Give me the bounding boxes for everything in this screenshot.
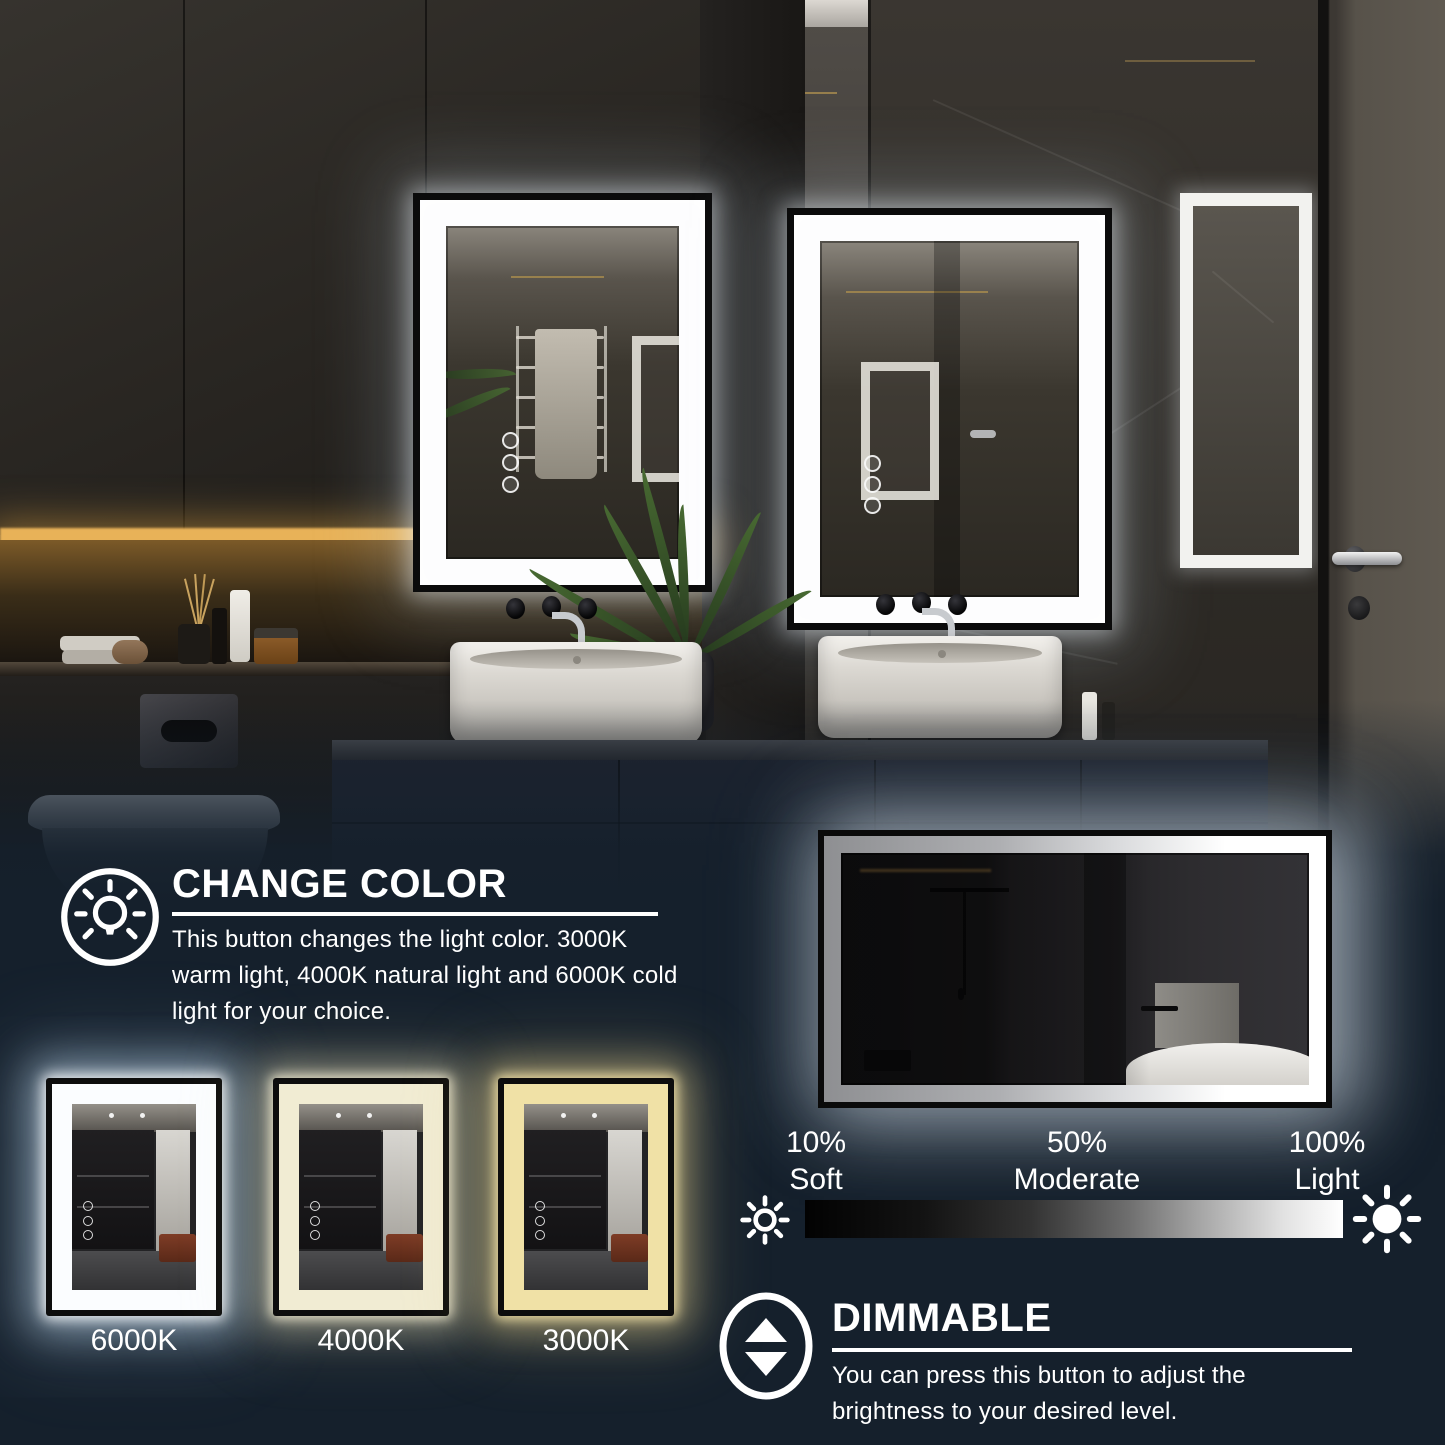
reflection-bench xyxy=(159,1234,196,1262)
reflection-ceiling xyxy=(299,1104,423,1132)
reflection-bench xyxy=(386,1234,423,1262)
light-bulb-rays-icon xyxy=(58,865,162,969)
mirror-glass xyxy=(524,1104,648,1290)
plant-leaf xyxy=(446,361,516,385)
door-handle xyxy=(1332,552,1402,565)
faucet-knob xyxy=(876,594,895,615)
mirror-touch-button xyxy=(502,454,519,471)
mirror-touch-button xyxy=(310,1216,320,1226)
mirror-touch-button xyxy=(535,1201,545,1211)
mirror-thumbnail-3000k xyxy=(498,1078,674,1316)
mirror-touch-button xyxy=(535,1216,545,1226)
mirror-touch-button xyxy=(83,1201,93,1211)
faucet-knob xyxy=(506,598,525,619)
temp-label-4000k: 4000K xyxy=(273,1324,449,1358)
mirror-touch-button xyxy=(502,476,519,493)
change-color-description: This button changes the light color. 300… xyxy=(172,922,692,1030)
faucet-knob xyxy=(948,594,967,615)
temp-label-6000k: 6000K xyxy=(46,1324,222,1358)
amber-jar xyxy=(254,628,298,664)
led-mirror-product-infographic: CHANGE COLOR This button changes the lig… xyxy=(0,0,1445,1445)
mirror-thumbnail-4000k xyxy=(273,1078,449,1316)
change-color-title: CHANGE COLOR xyxy=(172,862,507,907)
reflected-door-handle xyxy=(970,430,996,438)
mirror-thumbnail-6000k xyxy=(46,1078,222,1316)
towel-rack-post xyxy=(604,326,607,473)
reflection-ceiling xyxy=(72,1104,196,1132)
mirror-glass xyxy=(446,226,679,559)
mirror-glass xyxy=(841,853,1309,1085)
dark-bottle xyxy=(212,608,227,664)
brightness-gradient-bar xyxy=(805,1200,1343,1238)
brightness-percent: 100% xyxy=(1242,1124,1412,1161)
up-down-arrows-icon xyxy=(716,1290,816,1402)
mirror-touch-button xyxy=(83,1216,93,1226)
dimmable-mirror-inset xyxy=(818,830,1332,1108)
closet-shelf xyxy=(77,1175,149,1177)
gold-inlay-line xyxy=(1125,60,1255,62)
brightness-percent: 10% xyxy=(731,1124,901,1161)
dimmable-title: DIMMABLE xyxy=(832,1296,1052,1341)
led-mirror-right xyxy=(787,208,1112,630)
plant-leaf xyxy=(446,378,511,432)
door-lock xyxy=(1348,596,1370,620)
temp-label-3000k: 3000K xyxy=(498,1324,674,1358)
mirror-glass xyxy=(72,1104,196,1290)
mirror-touch-button xyxy=(864,455,881,472)
cabinet-seam xyxy=(183,0,185,535)
towel-rack-post xyxy=(516,326,519,473)
dimmable-underline xyxy=(832,1348,1352,1352)
mirror-touch-button xyxy=(864,476,881,493)
sink-drain xyxy=(938,650,946,658)
brightness-level-low: 10% Soft xyxy=(731,1124,901,1198)
cosmetic-tube xyxy=(230,590,250,662)
led-mirror-side xyxy=(1180,193,1312,568)
reflection-gold-line xyxy=(511,276,604,278)
reflected-mirror-frame xyxy=(632,336,679,482)
mirror-glass xyxy=(1193,206,1299,555)
change-color-underline xyxy=(172,912,658,916)
diffuser-bottle xyxy=(178,624,210,664)
brightness-zones xyxy=(841,853,1309,1085)
mirror-glass xyxy=(820,241,1079,597)
reflection-gold-line xyxy=(846,291,988,293)
led-mirror-left xyxy=(413,193,712,592)
brightness-level-mid: 50% Moderate xyxy=(992,1124,1162,1198)
faucet-knob xyxy=(578,598,597,619)
brightness-word: Moderate xyxy=(992,1161,1162,1198)
reflection-bench xyxy=(611,1234,648,1262)
rolled-towel xyxy=(112,640,148,664)
sun-filled-icon xyxy=(1351,1183,1423,1255)
closet-shelf xyxy=(304,1175,376,1177)
hanging-towel xyxy=(535,329,597,479)
closet-shelf xyxy=(529,1175,601,1177)
mirror-touch-button xyxy=(310,1201,320,1211)
dimmable-description: You can press this button to adjust the … xyxy=(832,1358,1342,1430)
reflection-ceiling xyxy=(524,1104,648,1132)
mirror-touch-button xyxy=(864,497,881,514)
brightness-percent: 50% xyxy=(992,1124,1162,1161)
sun-outline-icon xyxy=(737,1192,793,1248)
mirror-glass xyxy=(299,1104,423,1290)
marble-vein xyxy=(1212,271,1275,324)
